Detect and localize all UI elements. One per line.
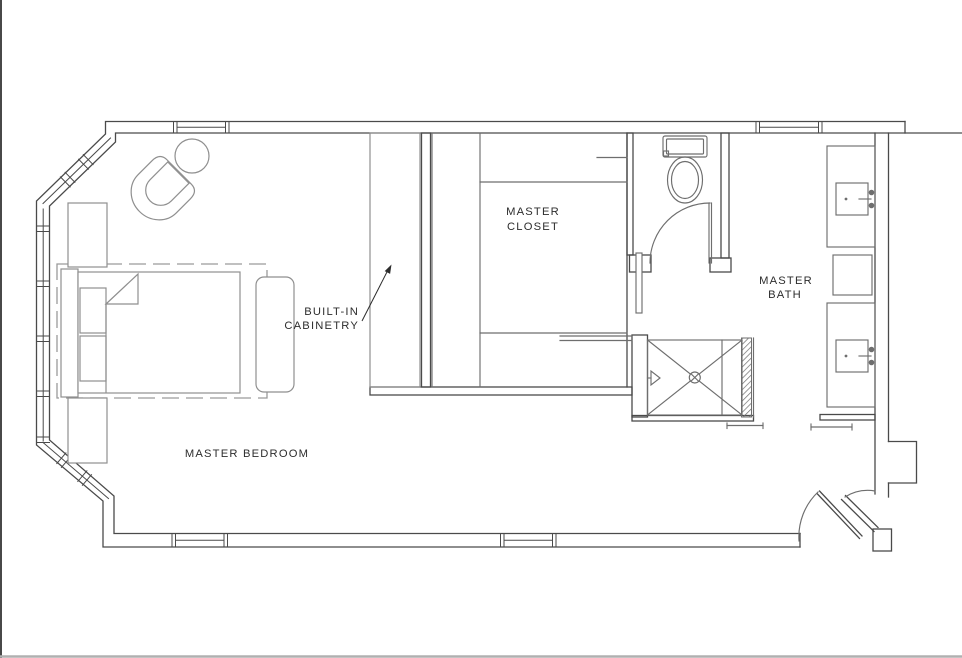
floor-plan-drawing: MASTER BEDROOM MASTER CLOSET MASTER BATH… <box>0 0 962 658</box>
bedroom-furniture <box>57 139 294 463</box>
bottom-window-2 <box>501 534 557 548</box>
wc-fixtures <box>636 136 712 313</box>
bottom-window-1 <box>172 534 228 548</box>
faucet-1-handle-b <box>869 203 875 209</box>
toilet-bowl <box>668 157 703 203</box>
closet-south-wall <box>370 387 632 395</box>
shower-knee-wall <box>742 338 752 417</box>
foot-bench <box>256 277 294 392</box>
closet-west-wall <box>422 133 431 387</box>
shower <box>648 338 764 429</box>
bath-south-wall-stub <box>820 415 875 421</box>
towel-bar-shower <box>727 423 763 429</box>
toilet-tank-lid <box>667 139 704 154</box>
label-master-bath-line2: BATH <box>768 289 802 301</box>
armchair <box>120 153 198 231</box>
bath-south-wall <box>632 416 754 422</box>
entry-corner-block <box>873 529 892 551</box>
cabinetry-leader-arrow <box>362 265 392 322</box>
label-cabinetry-line1: BUILT-IN <box>304 306 359 318</box>
wc-door-swing-arc <box>650 203 710 263</box>
faucet-1-handle-a <box>869 190 875 196</box>
ottoman <box>175 139 209 173</box>
floor-plan-page: MASTER BEDROOM MASTER CLOSET MASTER BATH… <box>0 0 962 658</box>
label-master-bath-line1: MASTER <box>759 275 813 287</box>
built-in-cabinetry <box>370 133 420 387</box>
nightstand-north <box>68 203 107 267</box>
entry-double-door <box>799 490 875 541</box>
pillow-1 <box>80 288 106 333</box>
pillow-2 <box>80 336 106 381</box>
top-window-1 <box>174 122 230 134</box>
bay-window-left <box>37 209 50 443</box>
east-wall-return <box>889 442 917 484</box>
label-cabinetry-line2: CABINETRY <box>284 320 359 332</box>
sink-1-drain <box>845 198 848 201</box>
entry-door-swing-arc-2 <box>845 490 875 497</box>
label-master-bedroom: MASTER BEDROOM <box>185 448 309 460</box>
wc-west-wall <box>627 133 633 255</box>
shower-head-icon <box>648 371 661 385</box>
wc-east-jamb <box>710 258 731 272</box>
headboard <box>61 269 78 397</box>
vanity-stool <box>833 255 872 295</box>
entry-chamfer-wall-b <box>842 500 875 532</box>
entry-door-leaf-1a <box>817 494 860 539</box>
top-window-2 <box>756 122 822 134</box>
wc-east-wall <box>721 133 729 258</box>
entry-chamfer-wall-a <box>846 496 879 528</box>
closet-fittings <box>370 133 632 387</box>
toilet-seat <box>672 162 699 199</box>
shower-west-wall <box>632 335 648 417</box>
bay-window-upper-diagonal <box>43 138 111 204</box>
label-master-closet-line1: MASTER <box>506 206 560 218</box>
faucet-2-handle-b <box>869 360 875 366</box>
vanities <box>811 146 875 430</box>
nightstand-south <box>68 398 107 463</box>
faucet-2-handle-a <box>869 347 875 353</box>
label-master-closet-line2: CLOSET <box>507 221 559 233</box>
interior-walls <box>370 133 917 551</box>
towel-bar-vanity <box>811 424 852 430</box>
entry-door-swing-arc-1 <box>799 492 818 541</box>
sink-2-drain <box>845 355 848 358</box>
pocket-door-panel <box>636 253 642 313</box>
